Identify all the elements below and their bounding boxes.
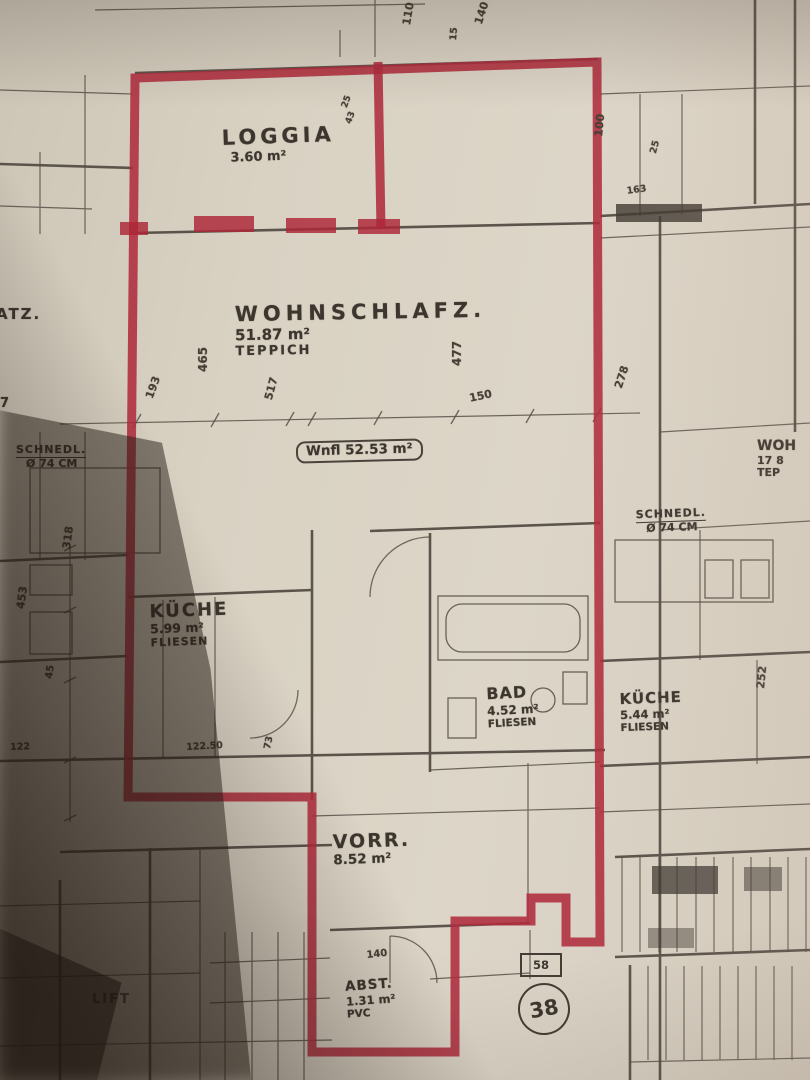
- dim-100: 100: [592, 113, 607, 137]
- left-edge-number-text: 7: [0, 396, 9, 411]
- dim-140-bottom: 140: [366, 948, 388, 961]
- loggia-partition-red: [378, 62, 381, 229]
- unit-number-value: 38: [528, 995, 561, 1024]
- room-platz-name: ATZ.: [0, 306, 41, 324]
- room-vorraum-area: 8.52 m²: [333, 851, 411, 870]
- plan-linework: [0, 0, 810, 1080]
- room-vorraum: VORR. 8.52 m²: [332, 829, 411, 870]
- dim-122-50: 122.50: [186, 740, 223, 753]
- apartment-outline-red: [120, 62, 600, 1052]
- left-edge-number: 7: [0, 396, 9, 411]
- room-vorraum-name: VORR.: [332, 829, 410, 854]
- door-width-value: 58: [533, 958, 549, 972]
- floorplan-photo: LOGGIA 3.60 m² WOHNSCHLAFZ. 51.87 m² TEP…: [0, 0, 810, 1080]
- room-wohn-right-name: WOH: [757, 438, 810, 455]
- room-loggia-name: LOGGIA: [221, 122, 335, 151]
- column-note-left: SCHNEDL. Ø 74 CM: [16, 444, 86, 471]
- living-area-note: Wnfl 52.53 m²: [296, 438, 423, 463]
- room-platz-clipped: ATZ.: [0, 306, 41, 324]
- room-abstellraum: ABST. 1.31 m² PVC: [345, 976, 397, 1021]
- room-kueche-left-floor: FLIESEN: [150, 635, 229, 651]
- column-note-right: SCHNEDL. Ø 74 CM: [636, 507, 707, 536]
- room-lift-name: LIFT: [92, 992, 131, 1007]
- room-kueche-left: KÜCHE 5.99 m² FLIESEN: [149, 599, 229, 651]
- room-kueche-right-name: KÜCHE: [619, 689, 682, 709]
- dim-465: 465: [196, 347, 210, 372]
- room-wohn-right-clipped: WOH 17 8 TEP: [757, 438, 810, 480]
- column-note-right-line2: Ø 74 CM: [646, 521, 707, 536]
- room-bad: BAD 4.52 m² FLIESEN: [486, 683, 540, 731]
- door-width-box: 58: [520, 953, 562, 977]
- dim-252: 252: [754, 665, 769, 689]
- room-kueche-right: KÜCHE 5.44 m² FLIESEN: [619, 689, 683, 735]
- dim-122: 122: [10, 741, 30, 753]
- room-loggia: LOGGIA 3.60 m²: [221, 122, 335, 166]
- dim-477: 477: [450, 341, 464, 366]
- room-lift: LIFT: [92, 992, 131, 1007]
- room-kueche-right-floor: FLIESEN: [620, 720, 683, 735]
- room-wohnschlaf-name: WOHNSCHLAFZ.: [235, 298, 487, 327]
- living-area-note-text: Wnfl 52.53 m²: [296, 438, 423, 463]
- dim-45: 45: [44, 664, 57, 679]
- ink-smudges: [616, 204, 782, 948]
- door-arcs: [250, 537, 437, 983]
- dim-15: 15: [448, 27, 460, 41]
- room-wohn-right-floor: TEP: [757, 467, 810, 480]
- column-note-left-line2: Ø 74 CM: [26, 458, 86, 471]
- column-note-left-line1: SCHNEDL.: [16, 444, 86, 458]
- room-kueche-left-name: KÜCHE: [149, 599, 229, 623]
- outline-path: [128, 62, 600, 1052]
